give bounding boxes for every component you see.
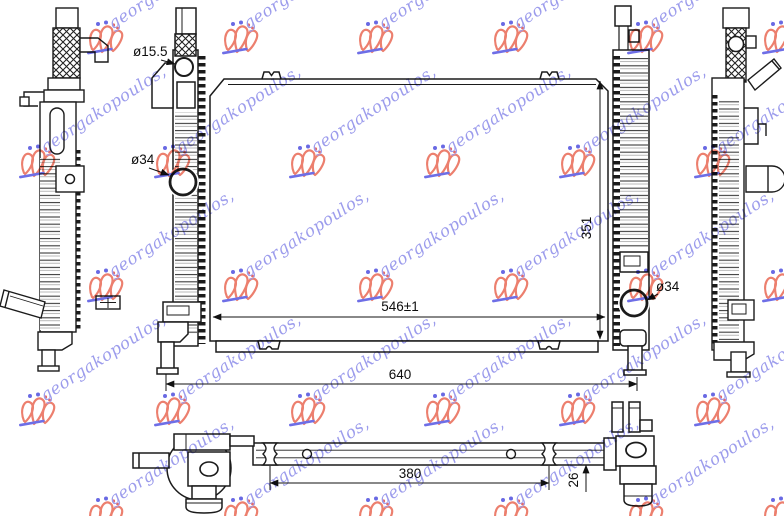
technical-drawing: 546±1 640 351 ø15.5 ø34 ø34 380 26 bbox=[0, 0, 784, 516]
bar-hole-left bbox=[303, 450, 312, 459]
right-foot-pin bbox=[628, 346, 642, 372]
br-stub bbox=[640, 420, 652, 431]
drawing-page: 546±1 640 351 ø15.5 ø34 ø34 380 26 georg… bbox=[0, 0, 784, 516]
inlet-crosshatch bbox=[175, 34, 196, 56]
dim-text-core-width: 546±1 bbox=[381, 299, 418, 314]
bl-plate-hole bbox=[200, 462, 218, 476]
right-foot bbox=[620, 330, 646, 346]
right-view-box-inner bbox=[732, 304, 746, 314]
right-hole-mask bbox=[618, 287, 650, 319]
br-flange bbox=[604, 438, 616, 470]
bar-hole-right bbox=[507, 450, 516, 459]
leader-34-left bbox=[149, 168, 169, 175]
left-lower-box-inner bbox=[167, 306, 189, 315]
right-neck-tab bbox=[629, 30, 639, 42]
bl-top-bracket bbox=[174, 434, 230, 450]
left-view-collar2 bbox=[44, 90, 84, 102]
dim-text-hole-left: ø34 bbox=[131, 152, 155, 167]
left-tank-upper-box bbox=[177, 82, 195, 108]
bottom-left-assembly bbox=[133, 434, 254, 513]
right-view-tab bbox=[746, 36, 756, 48]
br-cylinder bbox=[624, 484, 652, 506]
side-view-left bbox=[0, 8, 120, 371]
dim-text-inlet: ø15.5 bbox=[133, 44, 168, 59]
right-view-hose bbox=[748, 59, 781, 90]
bl-cylinder bbox=[186, 499, 222, 513]
br-prong1 bbox=[612, 402, 623, 432]
left-view-bracket-arm bbox=[80, 38, 108, 62]
left-view-hose bbox=[0, 290, 45, 318]
right-tank bbox=[613, 6, 650, 375]
right-tank-box-inner bbox=[624, 256, 640, 266]
br-body-hole bbox=[626, 443, 646, 458]
left-foot-base bbox=[157, 368, 178, 374]
right-view-top-block bbox=[723, 8, 749, 28]
left-view-bracket-hole bbox=[66, 175, 75, 184]
left-foot bbox=[158, 322, 188, 342]
right-view-pipe bbox=[746, 166, 784, 192]
dim-text-span: 380 bbox=[399, 466, 422, 481]
bl-neck bbox=[192, 486, 216, 499]
inlet-hole-15 bbox=[175, 58, 193, 76]
right-tank-ribs bbox=[620, 58, 648, 248]
right-view-pin bbox=[731, 352, 746, 372]
dim-text-depth: 26 bbox=[566, 472, 581, 487]
br-lower bbox=[620, 466, 656, 484]
right-foot-base bbox=[624, 370, 646, 375]
left-foot-pin bbox=[161, 342, 174, 370]
top-clip-left bbox=[262, 72, 281, 79]
bar-clip-left bbox=[263, 443, 277, 465]
bottom-right-assembly bbox=[604, 402, 656, 506]
inlet-top-block bbox=[176, 8, 196, 34]
bar-clip-right bbox=[542, 443, 556, 465]
top-clip-right bbox=[540, 72, 559, 79]
right-view-hole bbox=[729, 37, 744, 52]
left-view-foot bbox=[38, 332, 72, 350]
left-view-pin bbox=[42, 350, 55, 368]
dim-text-total-width: 640 bbox=[389, 367, 412, 382]
left-view-crosshatch bbox=[53, 28, 80, 78]
left-view-top-block bbox=[56, 8, 78, 28]
left-view-hook-tab bbox=[20, 97, 29, 106]
side-view-right bbox=[712, 8, 784, 377]
right-view-hook bbox=[744, 108, 766, 144]
bottom-view bbox=[133, 402, 656, 513]
dim-text-height: 351 bbox=[579, 217, 594, 240]
right-view-pin-base bbox=[727, 372, 750, 377]
left-tank-ribs bbox=[175, 112, 197, 334]
dim-text-hole-right: ø34 bbox=[656, 279, 680, 294]
left-view-pin-base bbox=[38, 366, 59, 371]
br-prong2 bbox=[629, 402, 640, 432]
left-view-collar bbox=[48, 78, 80, 90]
inlet-bracket bbox=[152, 63, 173, 108]
front-view bbox=[152, 6, 650, 375]
right-tank-neck-top bbox=[615, 6, 631, 26]
left-hole-mask bbox=[167, 166, 199, 198]
bl-step bbox=[230, 436, 254, 446]
left-view-slot bbox=[50, 108, 64, 154]
